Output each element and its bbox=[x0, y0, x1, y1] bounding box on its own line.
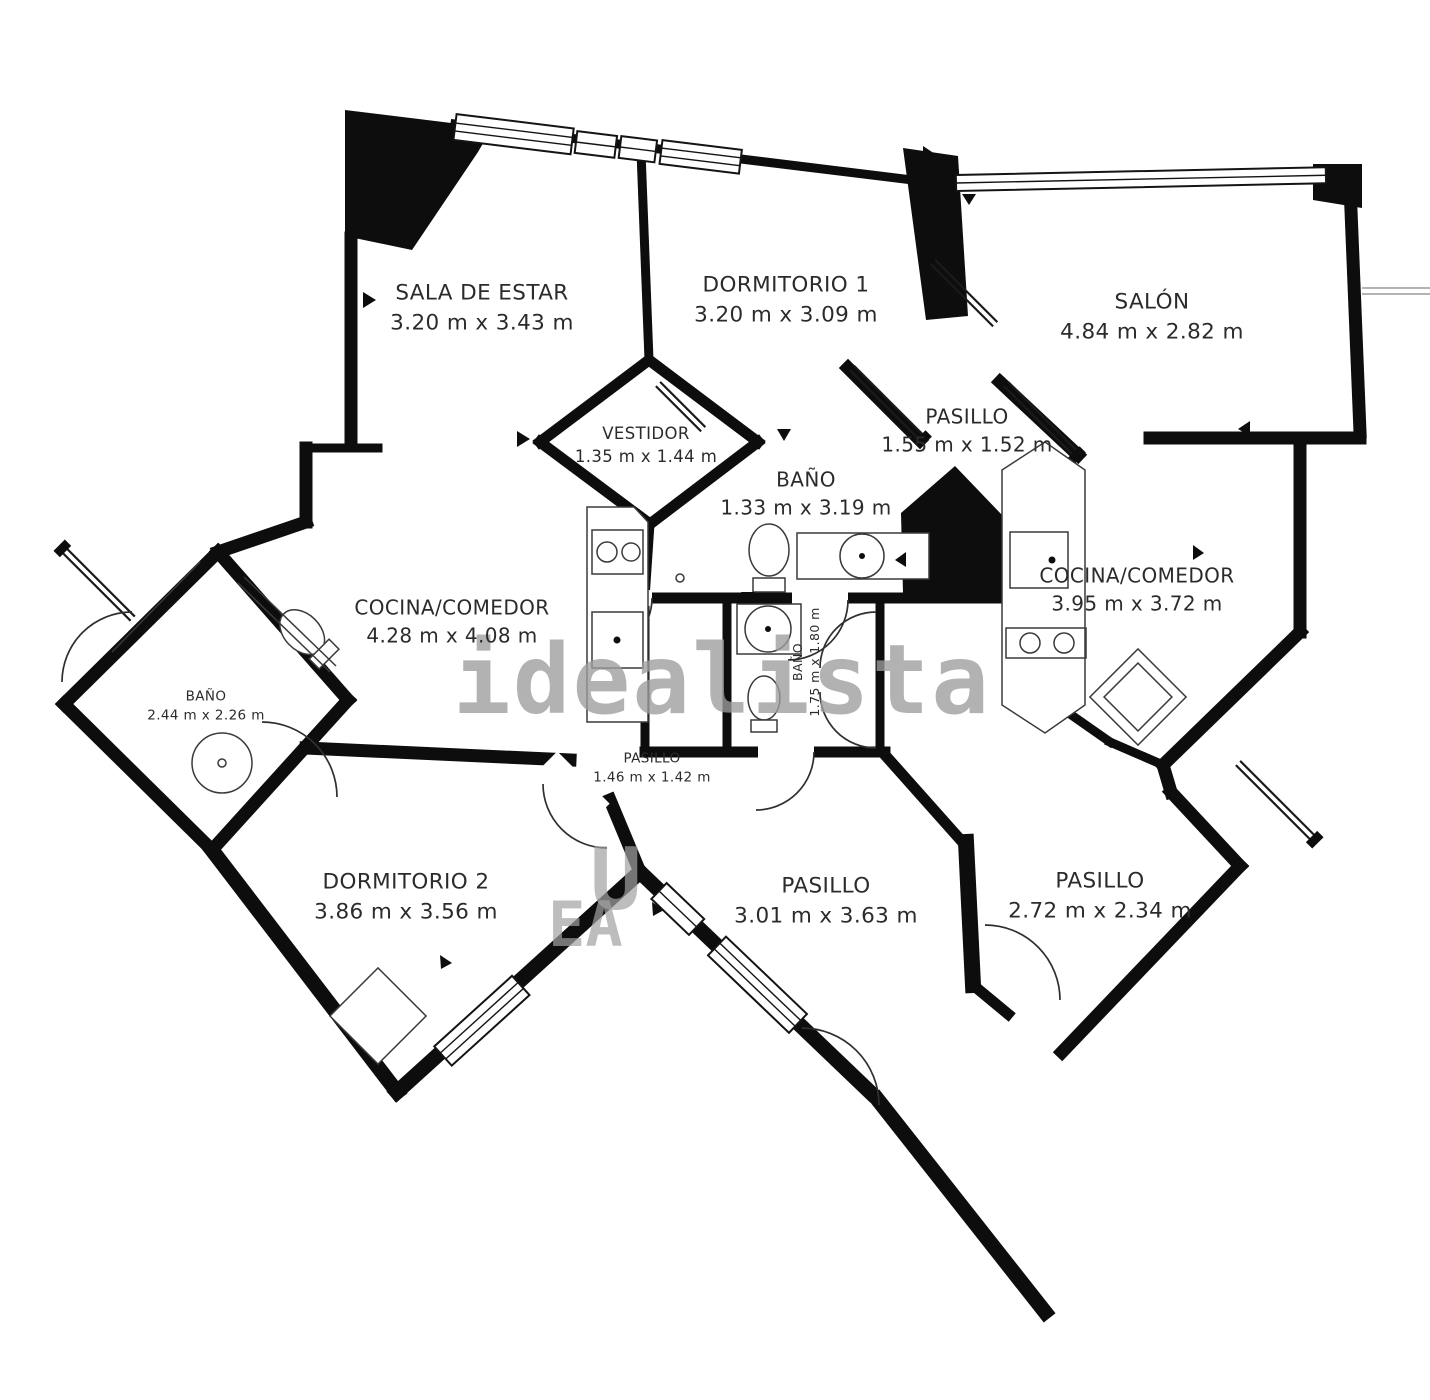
room-dimensions: 1.35 m x 1.44 m bbox=[575, 446, 717, 469]
room-name: COCINA/COMEDOR bbox=[354, 594, 549, 622]
room-name: SALA DE ESTAR bbox=[390, 278, 574, 308]
window-pasillo-2 bbox=[708, 937, 807, 1033]
window-dorm2 bbox=[434, 976, 529, 1066]
room-name: PASILLO bbox=[593, 749, 711, 768]
room-dimensions: 3.01 m x 3.63 m bbox=[734, 901, 918, 931]
appliance-diamond bbox=[1090, 649, 1186, 745]
tap-icon bbox=[676, 574, 684, 582]
window-salon bbox=[956, 167, 1326, 191]
room-dimensions: 2.44 m x 2.26 m bbox=[147, 706, 265, 725]
room-name: COCINA/COMEDOR bbox=[1039, 562, 1234, 590]
sink-bano244 bbox=[192, 733, 252, 793]
room-dimensions: 1.46 m x 1.42 m bbox=[593, 768, 711, 787]
room-name: BAÑO bbox=[789, 607, 806, 716]
room-name: DORMITORIO 2 bbox=[314, 867, 498, 897]
room-name: BAÑO bbox=[720, 466, 891, 494]
room-dimensions: 4.28 m x 4.08 m bbox=[354, 622, 549, 650]
room-label-vestidor: VESTIDOR 1.35 m x 1.44 m bbox=[575, 423, 717, 469]
room-label-salon: SALÓN 4.84 m x 2.82 m bbox=[1060, 287, 1244, 346]
room-label-bano-175: BAÑO 1.75 m x 1.80 m bbox=[789, 607, 824, 716]
room-dimensions: 1.75 m x 1.80 m bbox=[806, 607, 823, 716]
room-name: PASILLO bbox=[1008, 866, 1192, 896]
room-name: PASILLO bbox=[734, 871, 918, 901]
room-label-dormitorio-1: DORMITORIO 1 3.20 m x 3.09 m bbox=[694, 270, 878, 329]
room-label-sala-de-estar: SALA DE ESTAR 3.20 m x 3.43 m bbox=[390, 278, 574, 337]
room-label-bano-133: BAÑO 1.33 m x 3.19 m bbox=[720, 466, 891, 521]
room-name: VESTIDOR bbox=[575, 423, 717, 446]
room-name: PASILLO bbox=[881, 403, 1052, 431]
floor-plan-page: idealista U EA SALA DE ESTAR 3.20 m x 3.… bbox=[0, 0, 1430, 1400]
room-dimensions: 2.72 m x 2.34 m bbox=[1008, 896, 1192, 926]
room-label-pasillo-301: PASILLO 3.01 m x 3.63 m bbox=[734, 871, 918, 930]
room-name: SALÓN bbox=[1060, 287, 1244, 317]
window-sala-2 bbox=[575, 131, 617, 158]
room-label-bano-244: BAÑO 2.44 m x 2.26 m bbox=[147, 687, 265, 724]
room-name: DORMITORIO 1 bbox=[694, 270, 878, 300]
room-dimensions: 1.33 m x 3.19 m bbox=[720, 494, 891, 522]
room-name: BAÑO bbox=[147, 687, 265, 706]
room-label-cocina-comedor-right: COCINA/COMEDOR 3.95 m x 3.72 m bbox=[1039, 562, 1234, 617]
room-label-pasillo-146: PASILLO 1.46 m x 1.42 m bbox=[593, 749, 711, 786]
toilet-bano133 bbox=[749, 524, 789, 592]
room-dimensions: 3.95 m x 3.72 m bbox=[1039, 590, 1234, 618]
room-dimensions: 4.84 m x 2.82 m bbox=[1060, 317, 1244, 347]
room-dimensions: 3.20 m x 3.09 m bbox=[694, 300, 878, 330]
closet-dorm2 bbox=[330, 968, 426, 1064]
room-dimensions: 3.86 m x 3.56 m bbox=[314, 897, 498, 927]
window-dorm1-2 bbox=[660, 140, 742, 174]
room-label-cocina-comedor-left: COCINA/COMEDOR 4.28 m x 4.08 m bbox=[354, 594, 549, 649]
room-label-pasillo-272: PASILLO 2.72 m x 2.34 m bbox=[1008, 866, 1192, 925]
room-dimensions: 1.55 m x 1.52 m bbox=[881, 431, 1052, 459]
room-label-dormitorio-2: DORMITORIO 2 3.86 m x 3.56 m bbox=[314, 867, 498, 926]
room-dimensions: 3.20 m x 3.43 m bbox=[390, 308, 574, 338]
room-label-pasillo-155: PASILLO 1.55 m x 1.52 m bbox=[881, 403, 1052, 458]
watermark-fragment: EA bbox=[548, 888, 623, 961]
window-dorm1-1 bbox=[619, 136, 657, 162]
